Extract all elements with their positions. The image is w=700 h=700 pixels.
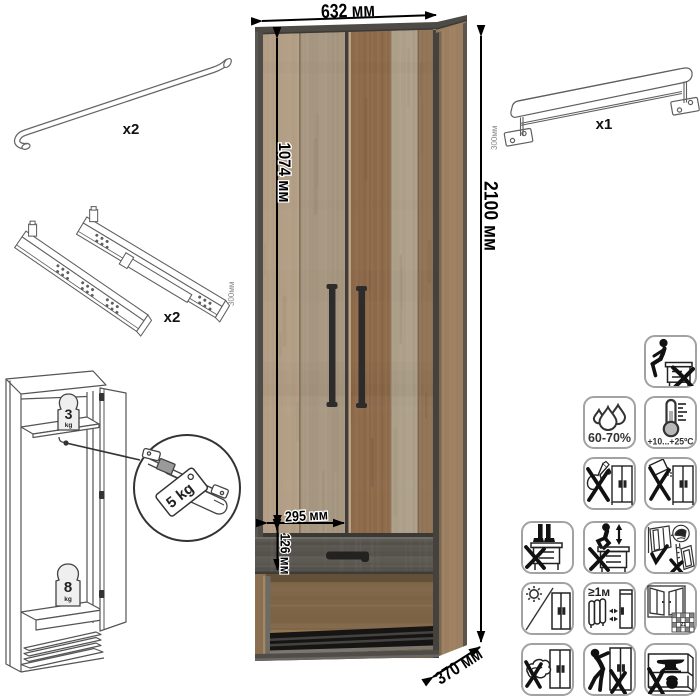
svg-text:300мм: 300мм — [490, 126, 499, 150]
svg-text:x2: x2 — [164, 309, 181, 326]
svg-text:21: 21 — [681, 622, 687, 628]
svg-text:kg: kg — [64, 596, 72, 603]
svg-text:x2: x2 — [123, 121, 140, 138]
svg-text:+10...+25ºC: +10...+25ºC — [648, 437, 694, 448]
svg-text:x1: x1 — [596, 116, 613, 133]
svg-text:8: 8 — [64, 579, 72, 596]
svg-text:300мм: 300мм — [227, 282, 236, 306]
svg-text:3: 3 — [65, 406, 73, 422]
svg-text:≥1м: ≥1м — [588, 585, 610, 599]
svg-text:60-70%: 60-70% — [588, 431, 631, 445]
svg-text:kg: kg — [65, 422, 73, 429]
